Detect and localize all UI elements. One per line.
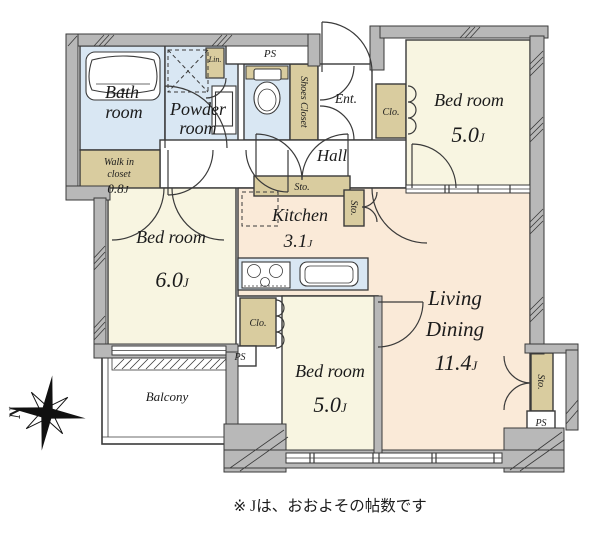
- bath-label-1: Bath: [105, 82, 139, 102]
- closet-top-label: Clo.: [383, 107, 400, 118]
- walkin-size: 0.8J: [107, 181, 129, 196]
- compass-north-label: N: [7, 406, 24, 420]
- bedroom-bottom-label: Bed room: [295, 361, 365, 381]
- window-bedroom-left: [112, 346, 226, 355]
- balcony-label: Balcony: [146, 389, 189, 404]
- partition-bedroom-top-right: [406, 185, 530, 193]
- bedroom-left-label: Bed room: [136, 227, 206, 247]
- ps-mid-label: PS: [233, 352, 245, 363]
- stove-icon: [242, 262, 290, 288]
- living-label-1: Living: [427, 286, 482, 310]
- powder-label-2: room: [179, 118, 216, 138]
- window-bottom: [286, 453, 502, 463]
- floor-plan: Bath room Powder room Lin. PS Shoes Clos…: [0, 0, 600, 536]
- kitchen-counter: [238, 258, 368, 290]
- footnote: ※ Jは、おおよその帖数です: [233, 497, 426, 515]
- living-label-2: Dining: [425, 317, 484, 341]
- closet-bottom-label: Clo.: [250, 318, 267, 329]
- ps-top-label: PS: [263, 48, 277, 60]
- walkin-label-1: Walk in: [104, 157, 134, 168]
- walkin-label-2: closet: [107, 169, 131, 180]
- entrance-label: Ent.: [334, 91, 357, 106]
- room-bedroom-top-right: [406, 40, 530, 188]
- shoes-closet-label: Shoes Closet: [298, 76, 309, 128]
- storage-br-label: Sto.: [535, 374, 546, 389]
- kitchen-label: Kitchen: [271, 205, 328, 225]
- compass-icon: N: [3, 370, 91, 456]
- sink-icon: [300, 262, 358, 286]
- balcony-step-hatch: [112, 357, 228, 370]
- powder-label-1: Powder: [169, 99, 227, 119]
- bedroom-tr-label: Bed room: [434, 90, 504, 110]
- linen-label: Lin.: [208, 55, 222, 64]
- bath-label-2: room: [105, 102, 142, 122]
- storage-vertical-label: Sto.: [348, 200, 359, 215]
- ps-br-label: PS: [534, 418, 546, 429]
- hall-label: Hall: [316, 146, 348, 165]
- storage-hall-label: Sto.: [294, 182, 309, 193]
